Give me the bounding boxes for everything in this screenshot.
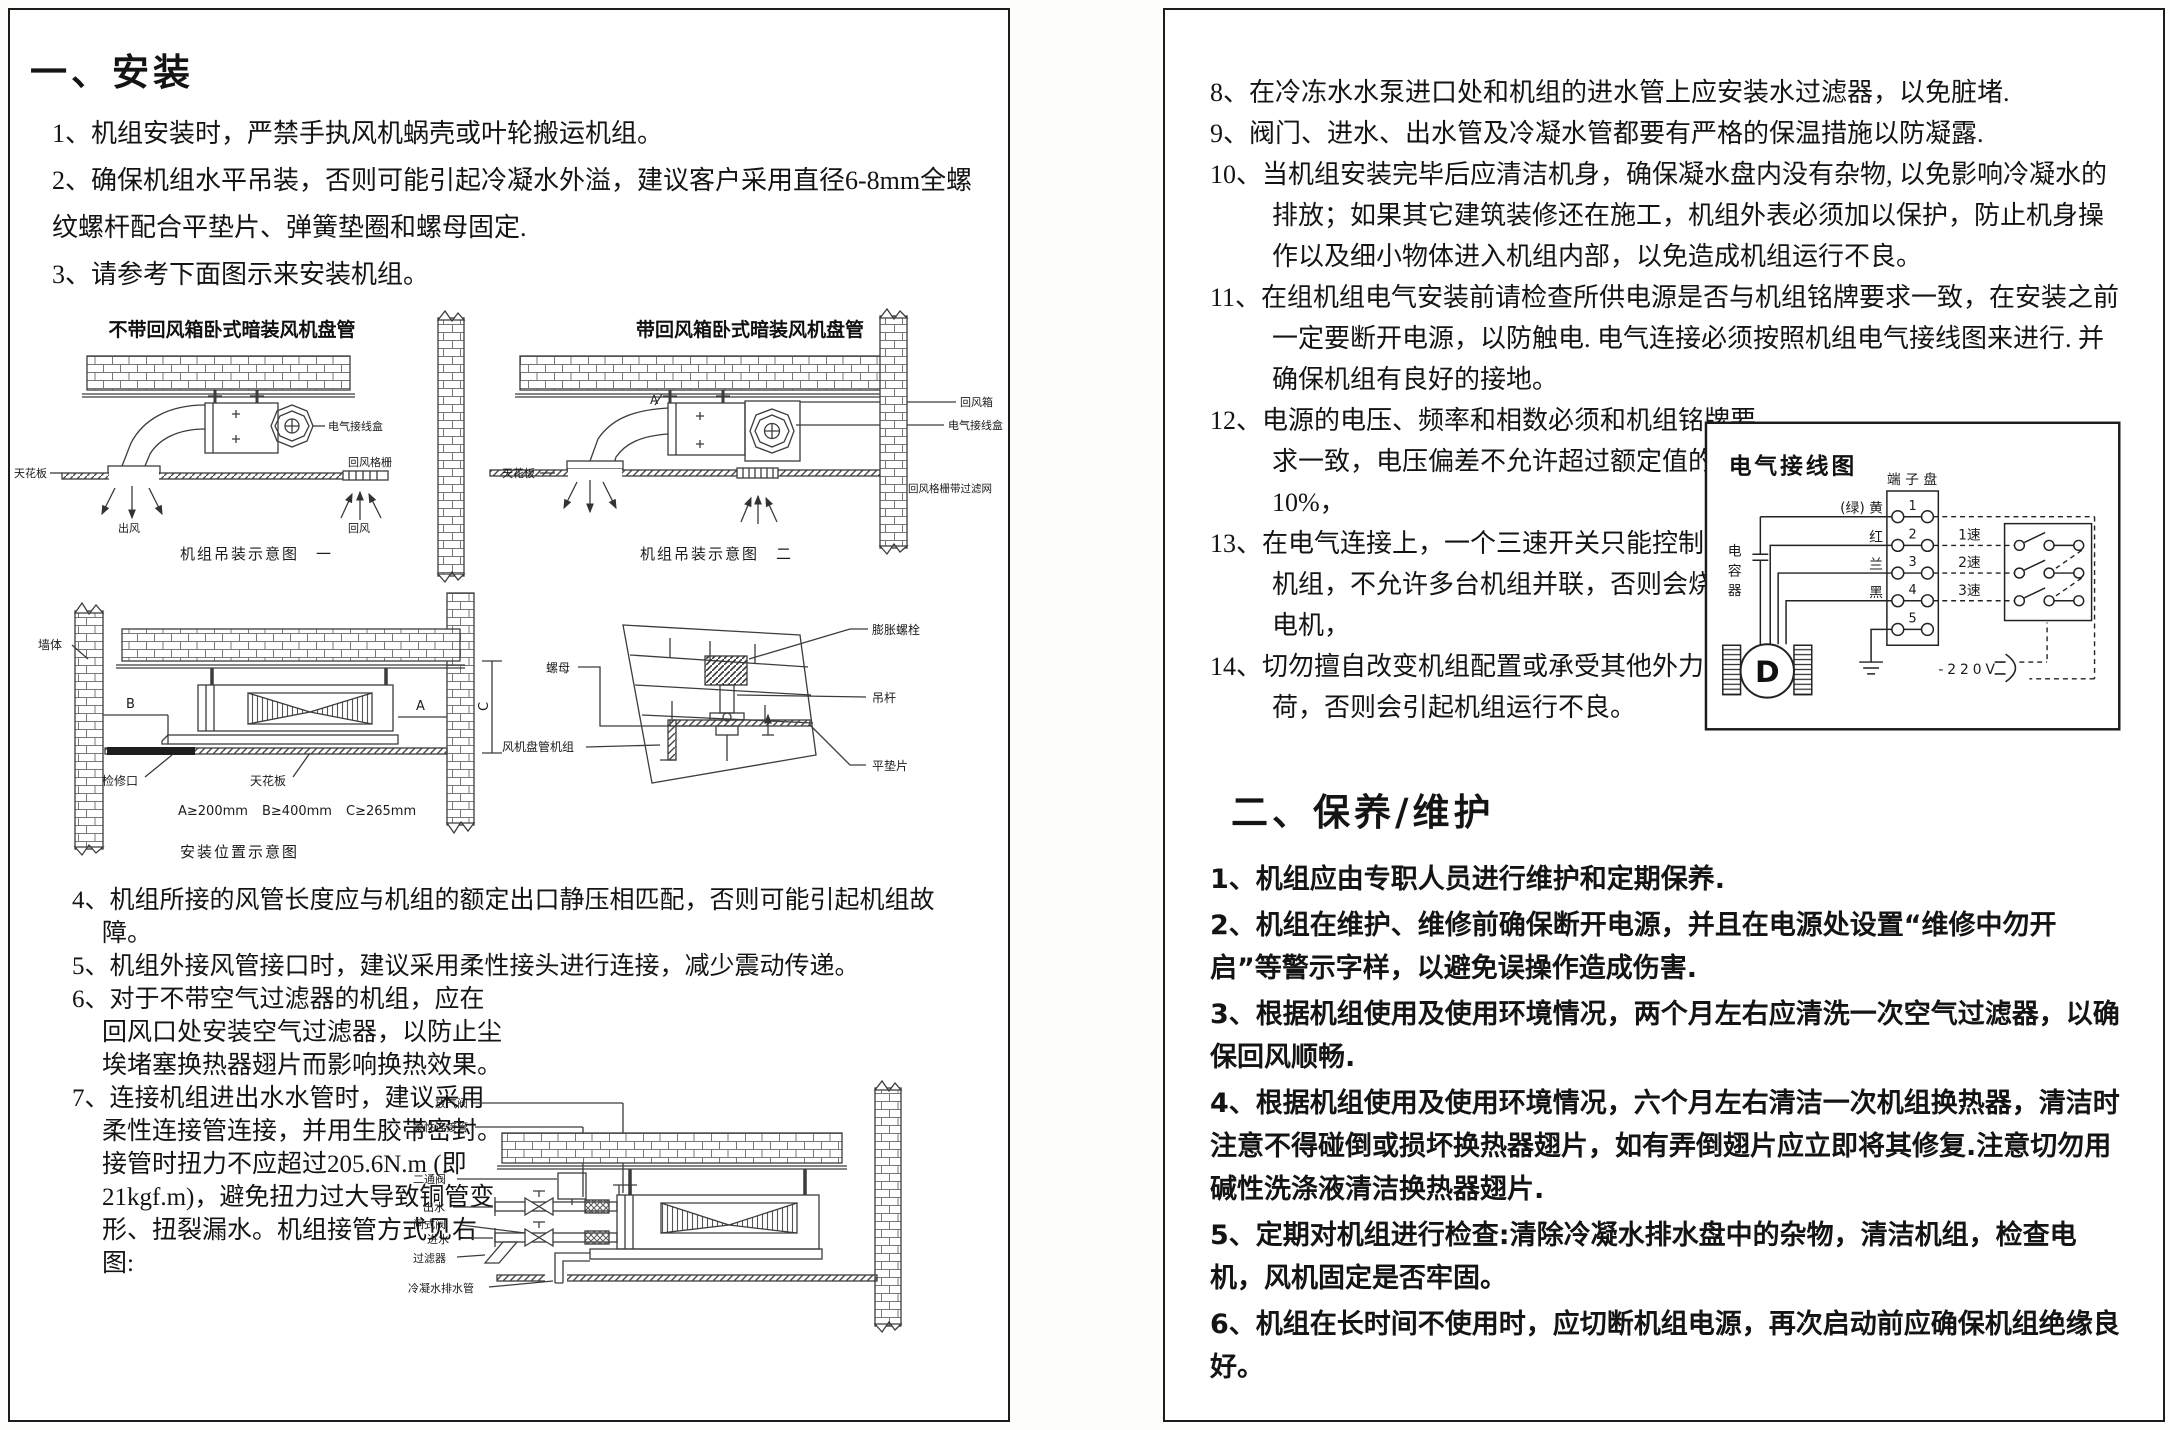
label-access-port: 检修口: [102, 773, 138, 788]
pipe-connection-diagram: 放气阀 柔性连接管 二通阀 出水 闸式阀 进水 过滤器 冷凝水排水管: [405, 1085, 950, 1337]
terminal-2: 2: [1909, 527, 1917, 542]
label-nut: 螺母: [546, 661, 570, 675]
motor-letter: D: [1755, 654, 1780, 689]
label-wall: 墙体: [38, 638, 62, 652]
terminal-3: 3: [1909, 555, 1917, 570]
label-grille-filter: 回风格栅带过滤网: [908, 482, 992, 495]
install-item: 9、阀门、进水、出水管及冷凝水管都要有严格的保温措施以防凝露.: [1210, 113, 2125, 154]
wiring-diagram: 电气接线图 端 子 盘 1 2 3 4 5 (绿) 黄 红 兰 黑: [1703, 413, 2143, 745]
hanger-detail-drawing: [578, 625, 868, 783]
install-items-1-3: 1、机组安装时，严禁手执风机蜗壳或叶轮搬运机组。 2、确保机组水平吊装，否则可能…: [52, 110, 987, 298]
label-return-air: 回风: [348, 522, 370, 535]
label-return-box: 回风箱: [960, 395, 993, 409]
label-dim-c: C: [477, 702, 492, 711]
label-dim-a: A: [650, 393, 659, 407]
install-item: 2、确保机组水平吊装，否则可能引起冷凝水外溢，建议客户采用直径6-8mm全螺纹螺…: [52, 157, 987, 251]
item-number: 8、: [1210, 78, 1249, 107]
terminal-4: 4: [1909, 583, 1917, 598]
install-heading: 一、安装: [30, 42, 194, 96]
item-text: 机组应由专职人员进行维护和定期保养.: [1256, 864, 1725, 895]
label-speed-3: 3速: [1958, 583, 1981, 599]
label-speed-2: 2速: [1958, 555, 1981, 571]
label-air-vent-valve: 放气阀: [435, 1096, 468, 1110]
item-number: 3、: [52, 260, 91, 289]
item-text: 电源的电压、频率和相数必须和机组铭牌要求一致，电压偏差不允许超过额定值的 ± 1…: [1262, 406, 1756, 517]
item-text: 机组在长时间不使用时，应切断机组电源，再次启动前应确保机组绝缘良好。: [1210, 1309, 2120, 1383]
label-return-grille: 回风格栅: [348, 455, 392, 469]
item-number: 12、: [1210, 406, 1262, 435]
item-text: 对于不带空气过滤器的机组，应在回风口处安装空气过滤器，以防止尘埃堵塞换热器翅片而…: [102, 986, 502, 1079]
right-wall: [880, 309, 907, 554]
item-text: 机组在维护、维修前确保断开电源，并且在电源处设置“维修中勿开启”等警示字样，以避…: [1210, 910, 2057, 984]
maintenance-item: 2、机组在维护、维修前确保断开电源，并且在电源处设置“维修中勿开启”等警示字样，…: [1210, 904, 2128, 990]
label-junction-box-2: 电气接线盒: [948, 418, 1003, 432]
item-number: 5、: [1210, 1220, 1256, 1251]
item-number: 13、: [1210, 529, 1262, 558]
label-junction-box: 电气接线盒: [328, 419, 383, 433]
item-number: 1、: [1210, 864, 1256, 895]
label-condensate-drain: 冷凝水排水管: [408, 1281, 474, 1295]
diagram-title-with-plenum: 带回风箱卧式暗装风机盘管: [636, 318, 864, 341]
dim-c-text: C≥265mm: [346, 804, 416, 819]
label-terminal-block: 端 子 盘: [1887, 471, 1937, 488]
item-number: 14、: [1210, 652, 1262, 681]
install-item: 5、机组外接风管接口时，建议采用柔性接头进行连接，减少震动传递。: [50, 950, 980, 983]
label-gate-valve: 闸式阀: [413, 1217, 446, 1231]
item-text: 请参考下面图示来安装机组。: [91, 260, 429, 289]
item-text: 在组机组电气安装前请检查所供电源是否与机组铭牌要求一致，在安装之前一定要断开电源…: [1261, 283, 2119, 394]
item-number: 2、: [52, 166, 91, 195]
item-number: 6、: [1210, 1309, 1256, 1340]
caption-position: 安装位置示意图: [180, 843, 299, 861]
install-item: 13、在电气连接上，一个三速开关只能控制一台机组，不允许多台机组并联，否则会烧坏…: [1210, 523, 1777, 646]
item-text: 根据机组使用及使用环境情况，两个月左右应清洗一次空气过滤器，以确保回风顺畅.: [1210, 999, 2120, 1073]
label-capacitor: 电容器: [1725, 543, 1742, 602]
label-hanger-rod: 吊杆: [872, 691, 896, 705]
item-text: 机组所接的风管长度应与机组的额定出口静压相匹配，否则可能引起机组故障。: [102, 887, 935, 947]
wire-red: 红: [1869, 529, 1883, 545]
install-item: 3、请参考下面图示来安装机组。: [52, 251, 987, 298]
left-page: 一、安装 1、机组安装时，严禁手执风机蜗壳或叶轮搬运机组。 2、确保机组水平吊装…: [8, 8, 1010, 1422]
item-number: 3、: [1210, 999, 1256, 1030]
label-water-outlet: 出水: [423, 1200, 445, 1214]
label-flat-washer: 平垫片: [872, 758, 908, 773]
left-hanging-drawing: [50, 356, 388, 520]
install-item: 8、在冷冻水水泵进口处和机组的进水管上应安装水过滤器，以免脏堵.: [1210, 72, 2125, 113]
caption-hanging-1: 机组吊装示意图 一: [180, 545, 333, 563]
dim-a-text: A≥200mm: [178, 804, 248, 819]
item-number: 2、: [1210, 910, 1256, 941]
item-text: 机组外接风管接口时，建议采用柔性接头进行连接，减少震动传递。: [110, 953, 860, 980]
label-fan-coil-unit: 风机盘管机组: [502, 739, 574, 754]
scanned-manual: { "left": { "heading": "一、安装", "items": …: [0, 0, 2170, 1430]
item-number: 9、: [1210, 119, 1249, 148]
install-item: 10、当机组安装完毕后应清洁机身，确保凝水盘内没有杂物, 以免影响冷凝水的排放；…: [1210, 154, 2125, 277]
install-item: 6、对于不带空气过滤器的机组，应在回风口处安装空气过滤器，以防止尘埃堵塞换热器翅…: [50, 983, 502, 1082]
install-position-diagram: 墙体 B A C 检修口 天花板 A≥200mm B≥400mm C≥265mm…: [10, 593, 1010, 883]
maintenance-heading: 二、保养/维护: [1231, 782, 1495, 836]
item-number: 7、: [72, 1085, 110, 1112]
label-expansion-bolt: 膨胀螺栓: [872, 622, 920, 637]
item-text: 阀门、进水、出水管及冷凝水管都要有严格的保温措施以防凝露.: [1249, 119, 1984, 148]
maintenance-item: 4、根据机组使用及使用环境情况，六个月左右清洁一次机组换热器，清洁时注意不得碰倒…: [1210, 1082, 2128, 1211]
install-item: 12、电源的电压、频率和相数必须和机组铭牌要求一致，电压偏差不允许超过额定值的 …: [1210, 400, 1777, 523]
item-number: 10、: [1210, 160, 1262, 189]
hanging-install-diagram: 不带回风箱卧式暗装风机盘管 带回风箱卧式暗装风机盘管: [10, 308, 1010, 590]
item-number: 4、: [72, 887, 110, 914]
label-strainer: 过滤器: [413, 1252, 446, 1265]
label-supply-air: 出风: [118, 521, 140, 535]
item-text: 根据机组使用及使用环境情况，六个月左右清洁一次机组换热器，清洁时注意不得碰倒或损…: [1210, 1088, 2120, 1205]
label-ceiling: 天花板: [250, 773, 286, 788]
item-number: 11、: [1210, 283, 1261, 312]
item-number: 4、: [1210, 1088, 1256, 1119]
maintenance-item: 5、定期对机组进行检查:清除冷凝水排水盘中的杂物，清洁机组，检查电机，风机固定是…: [1210, 1214, 2128, 1300]
right-page: 8、在冷冻水水泵进口处和机组的进水管上应安装水过滤器，以免脏堵. 9、阀门、进水…: [1163, 8, 2165, 1422]
label-dim-a: A: [416, 699, 425, 714]
item-text: 在电气连接上，一个三速开关只能控制一台机组，不允许多台机组并联，否则会烧坏毁电机…: [1262, 529, 1766, 640]
label-voltage: -220V: [1938, 662, 1999, 678]
item-number: 5、: [72, 953, 110, 980]
wire-black: 黑: [1869, 585, 1883, 601]
wire-blue: 兰: [1869, 557, 1883, 573]
install-item: 1、机组安装时，严禁手执风机蜗壳或叶轮搬运机组。: [52, 110, 987, 157]
dim-b-text: B≥400mm: [262, 804, 332, 819]
label-flexible-pipe: 柔性连接管: [413, 1120, 468, 1134]
middle-wall: [438, 311, 464, 582]
item-text: 在冷冻水水泵进口处和机组的进水管上应安装水过滤器，以免脏堵.: [1249, 78, 2010, 107]
install-item: 14、切勿擅自改变机组配置或承受其他外力载荷，否则会引起机组运行不良。: [1210, 646, 1777, 728]
label-two-way-valve: 二通阀: [413, 1172, 446, 1186]
maintenance-item: 3、根据机组使用及使用环境情况，两个月左右应清洗一次空气过滤器，以确保回风顺畅.: [1210, 993, 2128, 1079]
install-item: 4、机组所接的风管长度应与机组的额定出口静压相匹配，否则可能引起机组故障。: [50, 884, 980, 950]
diagram-title-no-plenum: 不带回风箱卧式暗装风机盘管: [108, 318, 355, 341]
install-item: 11、在组机组电气安装前请检查所供电源是否与机组铭牌要求一致，在安装之前一定要断…: [1210, 277, 2125, 400]
maintenance-item: 1、机组应由专职人员进行维护和定期保养.: [1210, 858, 2128, 901]
label-dim-b: B: [126, 697, 135, 712]
label-ceiling-2: 天花板: [502, 466, 535, 480]
item-number: 6、: [72, 986, 110, 1013]
wiring-title: 电气接线图: [1729, 453, 1858, 480]
label-speed-1: 1速: [1958, 527, 1981, 543]
label-ceiling: 天花板: [14, 466, 47, 480]
item-number: 1、: [52, 119, 91, 148]
item-text: 当机组安装完毕后应清洁机身，确保凝水盘内没有杂物, 以免影响冷凝水的排放；如果其…: [1262, 160, 2107, 271]
maintenance-item: 6、机组在长时间不使用时，应切断机组电源，再次启动前应确保机组绝缘良好。: [1210, 1303, 2128, 1389]
caption-hanging-2: 机组吊装示意图 二: [640, 545, 793, 563]
maintenance-items: 1、机组应由专职人员进行维护和定期保养. 2、机组在维护、维修前确保断开电源，并…: [1210, 858, 2128, 1392]
item-text: 切勿擅自改变机组配置或承受其他外力载荷，否则会引起机组运行不良。: [1262, 652, 1730, 722]
pipe-drawing: [453, 1081, 901, 1332]
item-text: 确保机组水平吊装，否则可能引起冷凝水外溢，建议客户采用直径6-8mm全螺纹螺杆配…: [52, 166, 972, 242]
terminal-1: 1: [1909, 499, 1917, 514]
item-text: 定期对机组进行检查:清除冷凝水排水盘中的杂物，清洁机组，检查电机，风机固定是否牢…: [1210, 1220, 2077, 1294]
wire-yellow-green: (绿) 黄: [1840, 501, 1883, 517]
terminal-5: 5: [1909, 612, 1917, 627]
item-text: 机组安装时，严禁手执风机蜗壳或叶轮搬运机组。: [91, 119, 663, 148]
label-water-inlet: 进水: [427, 1233, 449, 1246]
